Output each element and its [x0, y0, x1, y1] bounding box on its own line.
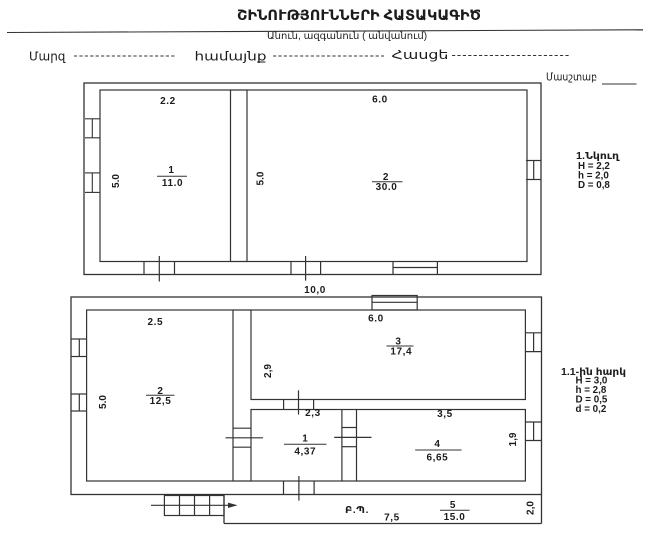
svg-text:5.0: 5.0	[111, 174, 122, 188]
svg-text:Անուն, ազգանուն ( անվանում): Անուն, ազգանուն ( անվանում)	[267, 31, 427, 42]
svg-text:4: 4	[434, 439, 440, 450]
svg-text:Մասշտաբ: Մասշտաբ	[546, 72, 597, 84]
svg-text:6.0: 6.0	[368, 314, 384, 325]
svg-text:30.0: 30.0	[376, 182, 398, 193]
svg-text:2.5: 2.5	[147, 317, 163, 328]
svg-text:1,9: 1,9	[508, 432, 519, 446]
svg-text:ՇԻՆՈՒԹՅՈՒՆՆԵՐԻ ՀԱՏԱԿԱԳԻԾ: ՇԻՆՈՒԹՅՈՒՆՆԵՐԻ ՀԱՏԱԿԱԳԻԾ	[237, 7, 481, 23]
svg-text:D = 0,8: D = 0,8	[578, 180, 610, 191]
svg-text:11.0: 11.0	[162, 178, 183, 189]
svg-text:5.0: 5.0	[256, 171, 267, 185]
svg-text:2.2: 2.2	[160, 96, 176, 107]
svg-text:12,5: 12,5	[150, 396, 172, 407]
svg-text:Բ.Պ.: Բ.Պ.	[345, 505, 369, 516]
svg-text:2,3: 2,3	[305, 408, 321, 419]
svg-text:6,65: 6,65	[426, 453, 448, 464]
svg-text:համայնք: համայնք	[195, 50, 267, 64]
svg-text:2,0: 2,0	[526, 501, 537, 515]
svg-text:3,5: 3,5	[437, 409, 453, 420]
svg-text:1: 1	[168, 165, 174, 176]
svg-text:5.0: 5.0	[98, 395, 109, 409]
svg-text:17,4: 17,4	[390, 347, 412, 358]
svg-text:Մարզ: Մարզ	[29, 50, 66, 64]
svg-text:2,9: 2,9	[263, 364, 274, 378]
svg-text:d = 0,2: d = 0,2	[576, 404, 607, 415]
svg-text:Հասցե: Հասցե	[392, 48, 449, 62]
svg-text:4,37: 4,37	[294, 447, 316, 458]
svg-text:10,0: 10,0	[304, 285, 326, 296]
svg-text:6.0: 6.0	[372, 95, 388, 106]
svg-text:5: 5	[450, 500, 456, 511]
svg-text:15.0: 15.0	[444, 512, 466, 523]
svg-text:1: 1	[302, 433, 308, 444]
svg-text:7,5: 7,5	[384, 513, 400, 524]
